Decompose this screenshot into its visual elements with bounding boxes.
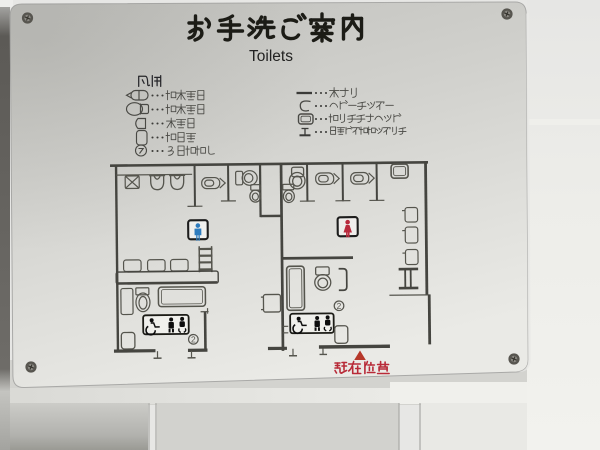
svg-text:2: 2 — [191, 334, 196, 344]
svg-text:Toilets: Toilets — [249, 48, 293, 65]
svg-text:2: 2 — [337, 301, 342, 311]
